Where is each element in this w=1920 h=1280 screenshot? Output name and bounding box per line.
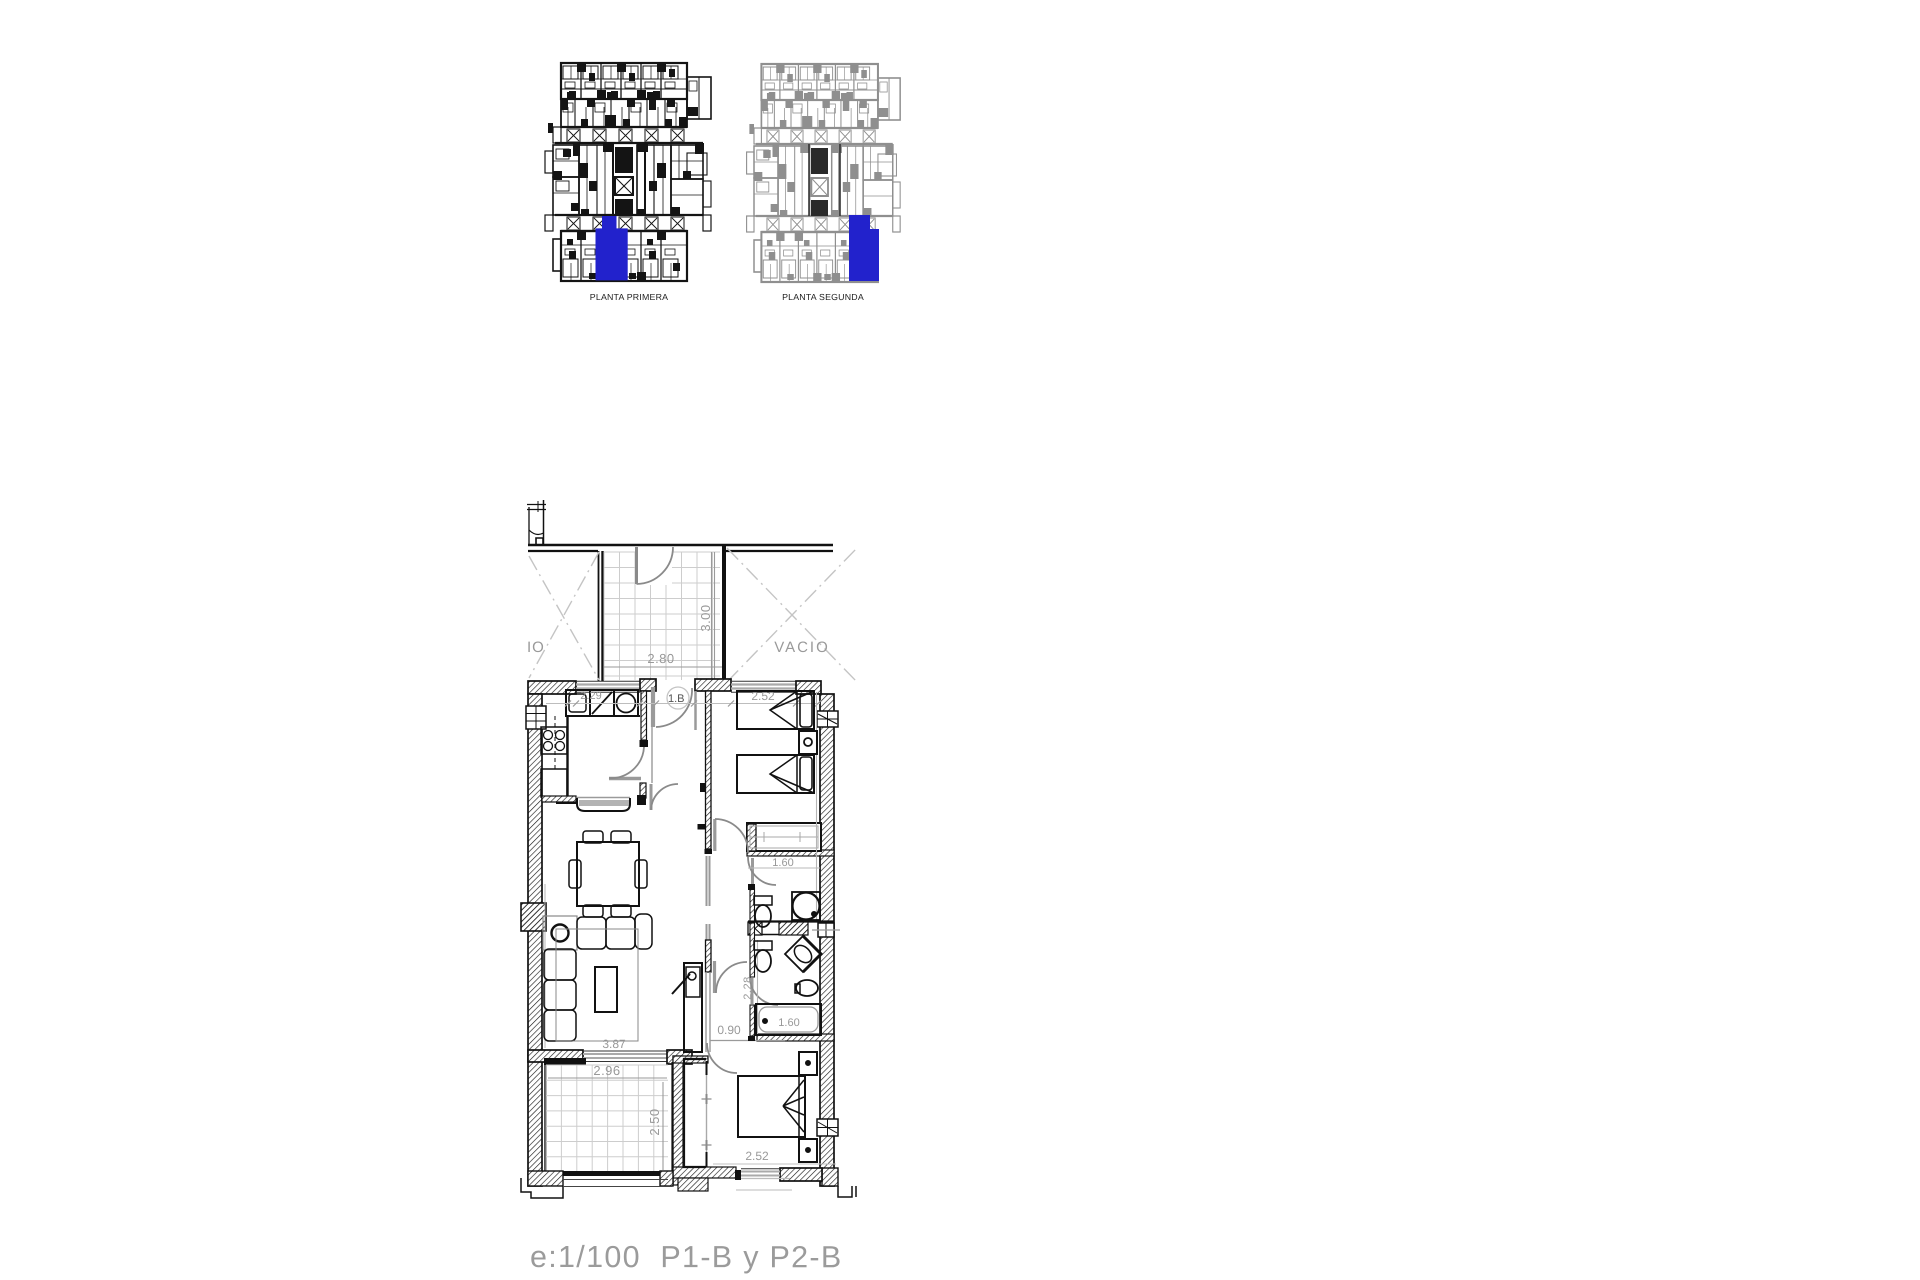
svg-text:PLANTA PRIMERA: PLANTA PRIMERA	[590, 292, 668, 302]
svg-text:2.96: 2.96	[593, 1063, 620, 1078]
svg-text:VACIO: VACIO	[774, 639, 830, 656]
svg-text:3.87: 3.87	[602, 1037, 626, 1051]
svg-text:2.50: 2.50	[647, 1108, 662, 1135]
svg-text:2.80: 2.80	[647, 651, 674, 666]
svg-text:PLANTA SEGUNDA: PLANTA SEGUNDA	[782, 292, 864, 302]
svg-text:1.60: 1.60	[772, 857, 793, 869]
svg-text:1.60: 1.60	[778, 1017, 799, 1029]
svg-text:2.28: 2.28	[742, 976, 754, 999]
svg-text:2.29: 2.29	[580, 690, 601, 702]
svg-text:e:1/100 P1-B y P2-B: e:1/100 P1-B y P2-B	[530, 1240, 843, 1274]
svg-text:3.00: 3.00	[698, 604, 713, 631]
svg-text:IO: IO	[527, 639, 545, 656]
svg-text:0.90: 0.90	[717, 1023, 741, 1037]
svg-text:2.52: 2.52	[745, 1149, 769, 1163]
